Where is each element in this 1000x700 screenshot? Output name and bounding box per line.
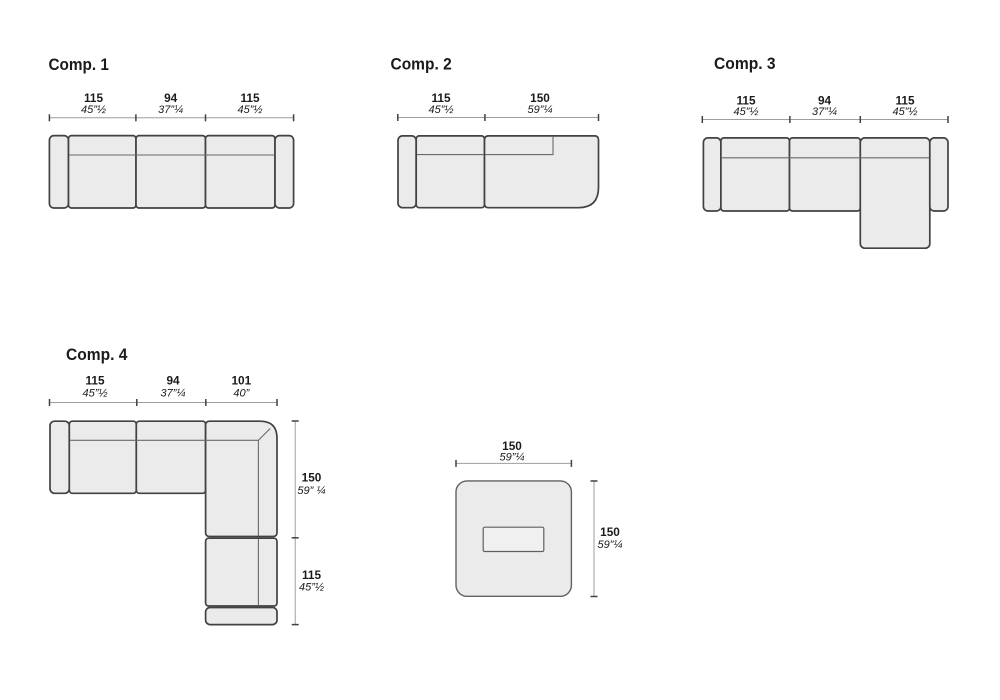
svg-text:45”½: 45”½: [299, 581, 324, 593]
svg-text:150: 150: [302, 471, 322, 485]
svg-text:115: 115: [85, 374, 104, 388]
svg-text:Comp. 1: Comp. 1: [49, 55, 109, 74]
svg-text:59”¼: 59”¼: [597, 539, 622, 551]
svg-text:59”¼: 59”¼: [527, 104, 552, 116]
svg-text:59” ¼: 59” ¼: [297, 485, 325, 497]
svg-text:115: 115: [431, 91, 450, 105]
svg-text:115: 115: [302, 568, 321, 582]
svg-text:45”½: 45”½: [237, 104, 262, 116]
svg-text:45”½: 45”½: [428, 104, 453, 116]
svg-text:45”½: 45”½: [733, 106, 758, 118]
svg-text:45”½: 45”½: [892, 106, 917, 118]
svg-text:Comp. 4: Comp. 4: [66, 345, 128, 364]
svg-text:150: 150: [530, 91, 550, 105]
svg-text:45”½: 45”½: [82, 387, 107, 399]
svg-text:115: 115: [84, 91, 103, 105]
svg-text:94: 94: [166, 374, 180, 388]
svg-text:150: 150: [600, 525, 620, 539]
svg-text:37”¼: 37”¼: [158, 104, 183, 116]
svg-text:115: 115: [240, 91, 259, 105]
svg-text:59”¼: 59”¼: [499, 452, 524, 464]
svg-text:Comp. 3: Comp. 3: [714, 54, 776, 73]
svg-text:40”: 40”: [233, 387, 250, 399]
svg-text:101: 101: [231, 374, 251, 388]
svg-text:94: 94: [164, 91, 178, 105]
svg-text:Comp. 2: Comp. 2: [391, 55, 452, 74]
svg-text:37”¼: 37”¼: [160, 387, 185, 399]
svg-text:45”½: 45”½: [81, 104, 106, 116]
svg-text:37”¼: 37”¼: [812, 106, 837, 118]
